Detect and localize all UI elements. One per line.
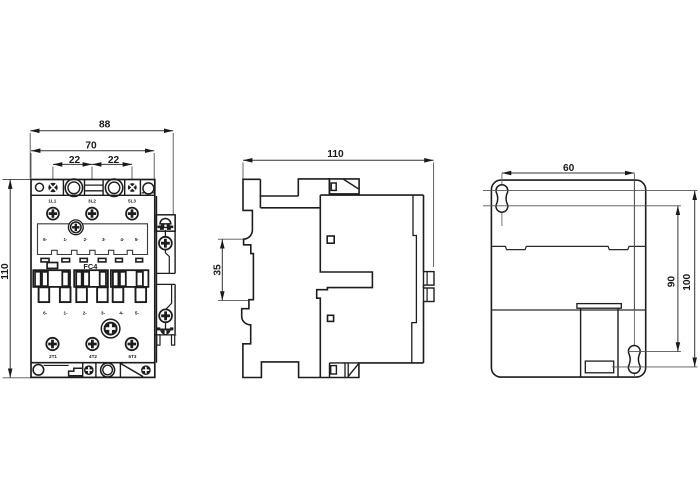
svg-text:110: 110 bbox=[0, 263, 11, 280]
svg-text:1-: 1- bbox=[63, 311, 68, 316]
svg-text:60: 60 bbox=[563, 163, 575, 174]
svg-text:100: 100 bbox=[682, 273, 693, 290]
svg-text:3·: 3· bbox=[102, 237, 106, 242]
svg-text:5L3: 5L3 bbox=[128, 198, 136, 203]
svg-text:5-: 5- bbox=[135, 311, 140, 316]
svg-text:22: 22 bbox=[69, 155, 81, 166]
svg-text:3-: 3- bbox=[101, 311, 106, 316]
svg-text:22: 22 bbox=[108, 155, 120, 166]
svg-text:6·: 6· bbox=[43, 237, 47, 242]
svg-text:4T2: 4T2 bbox=[89, 354, 97, 359]
svg-text:35: 35 bbox=[212, 264, 223, 276]
svg-text:5·: 5· bbox=[135, 237, 139, 242]
svg-text:6-: 6- bbox=[43, 311, 48, 316]
svg-text:6T3: 6T3 bbox=[129, 354, 137, 359]
svg-text:90: 90 bbox=[666, 276, 677, 288]
svg-text:2T1: 2T1 bbox=[49, 354, 57, 359]
svg-text:88: 88 bbox=[99, 120, 111, 131]
svg-text:2-: 2- bbox=[83, 311, 88, 316]
svg-text:4·: 4· bbox=[120, 237, 124, 242]
svg-text:70: 70 bbox=[85, 140, 97, 151]
svg-text:3L2: 3L2 bbox=[88, 198, 96, 203]
svg-text:1L1: 1L1 bbox=[48, 198, 56, 203]
svg-text:1·: 1· bbox=[63, 237, 67, 242]
svg-text:2·: 2· bbox=[84, 237, 88, 242]
svg-text:110: 110 bbox=[327, 149, 344, 160]
svg-text:4-: 4- bbox=[119, 311, 124, 316]
